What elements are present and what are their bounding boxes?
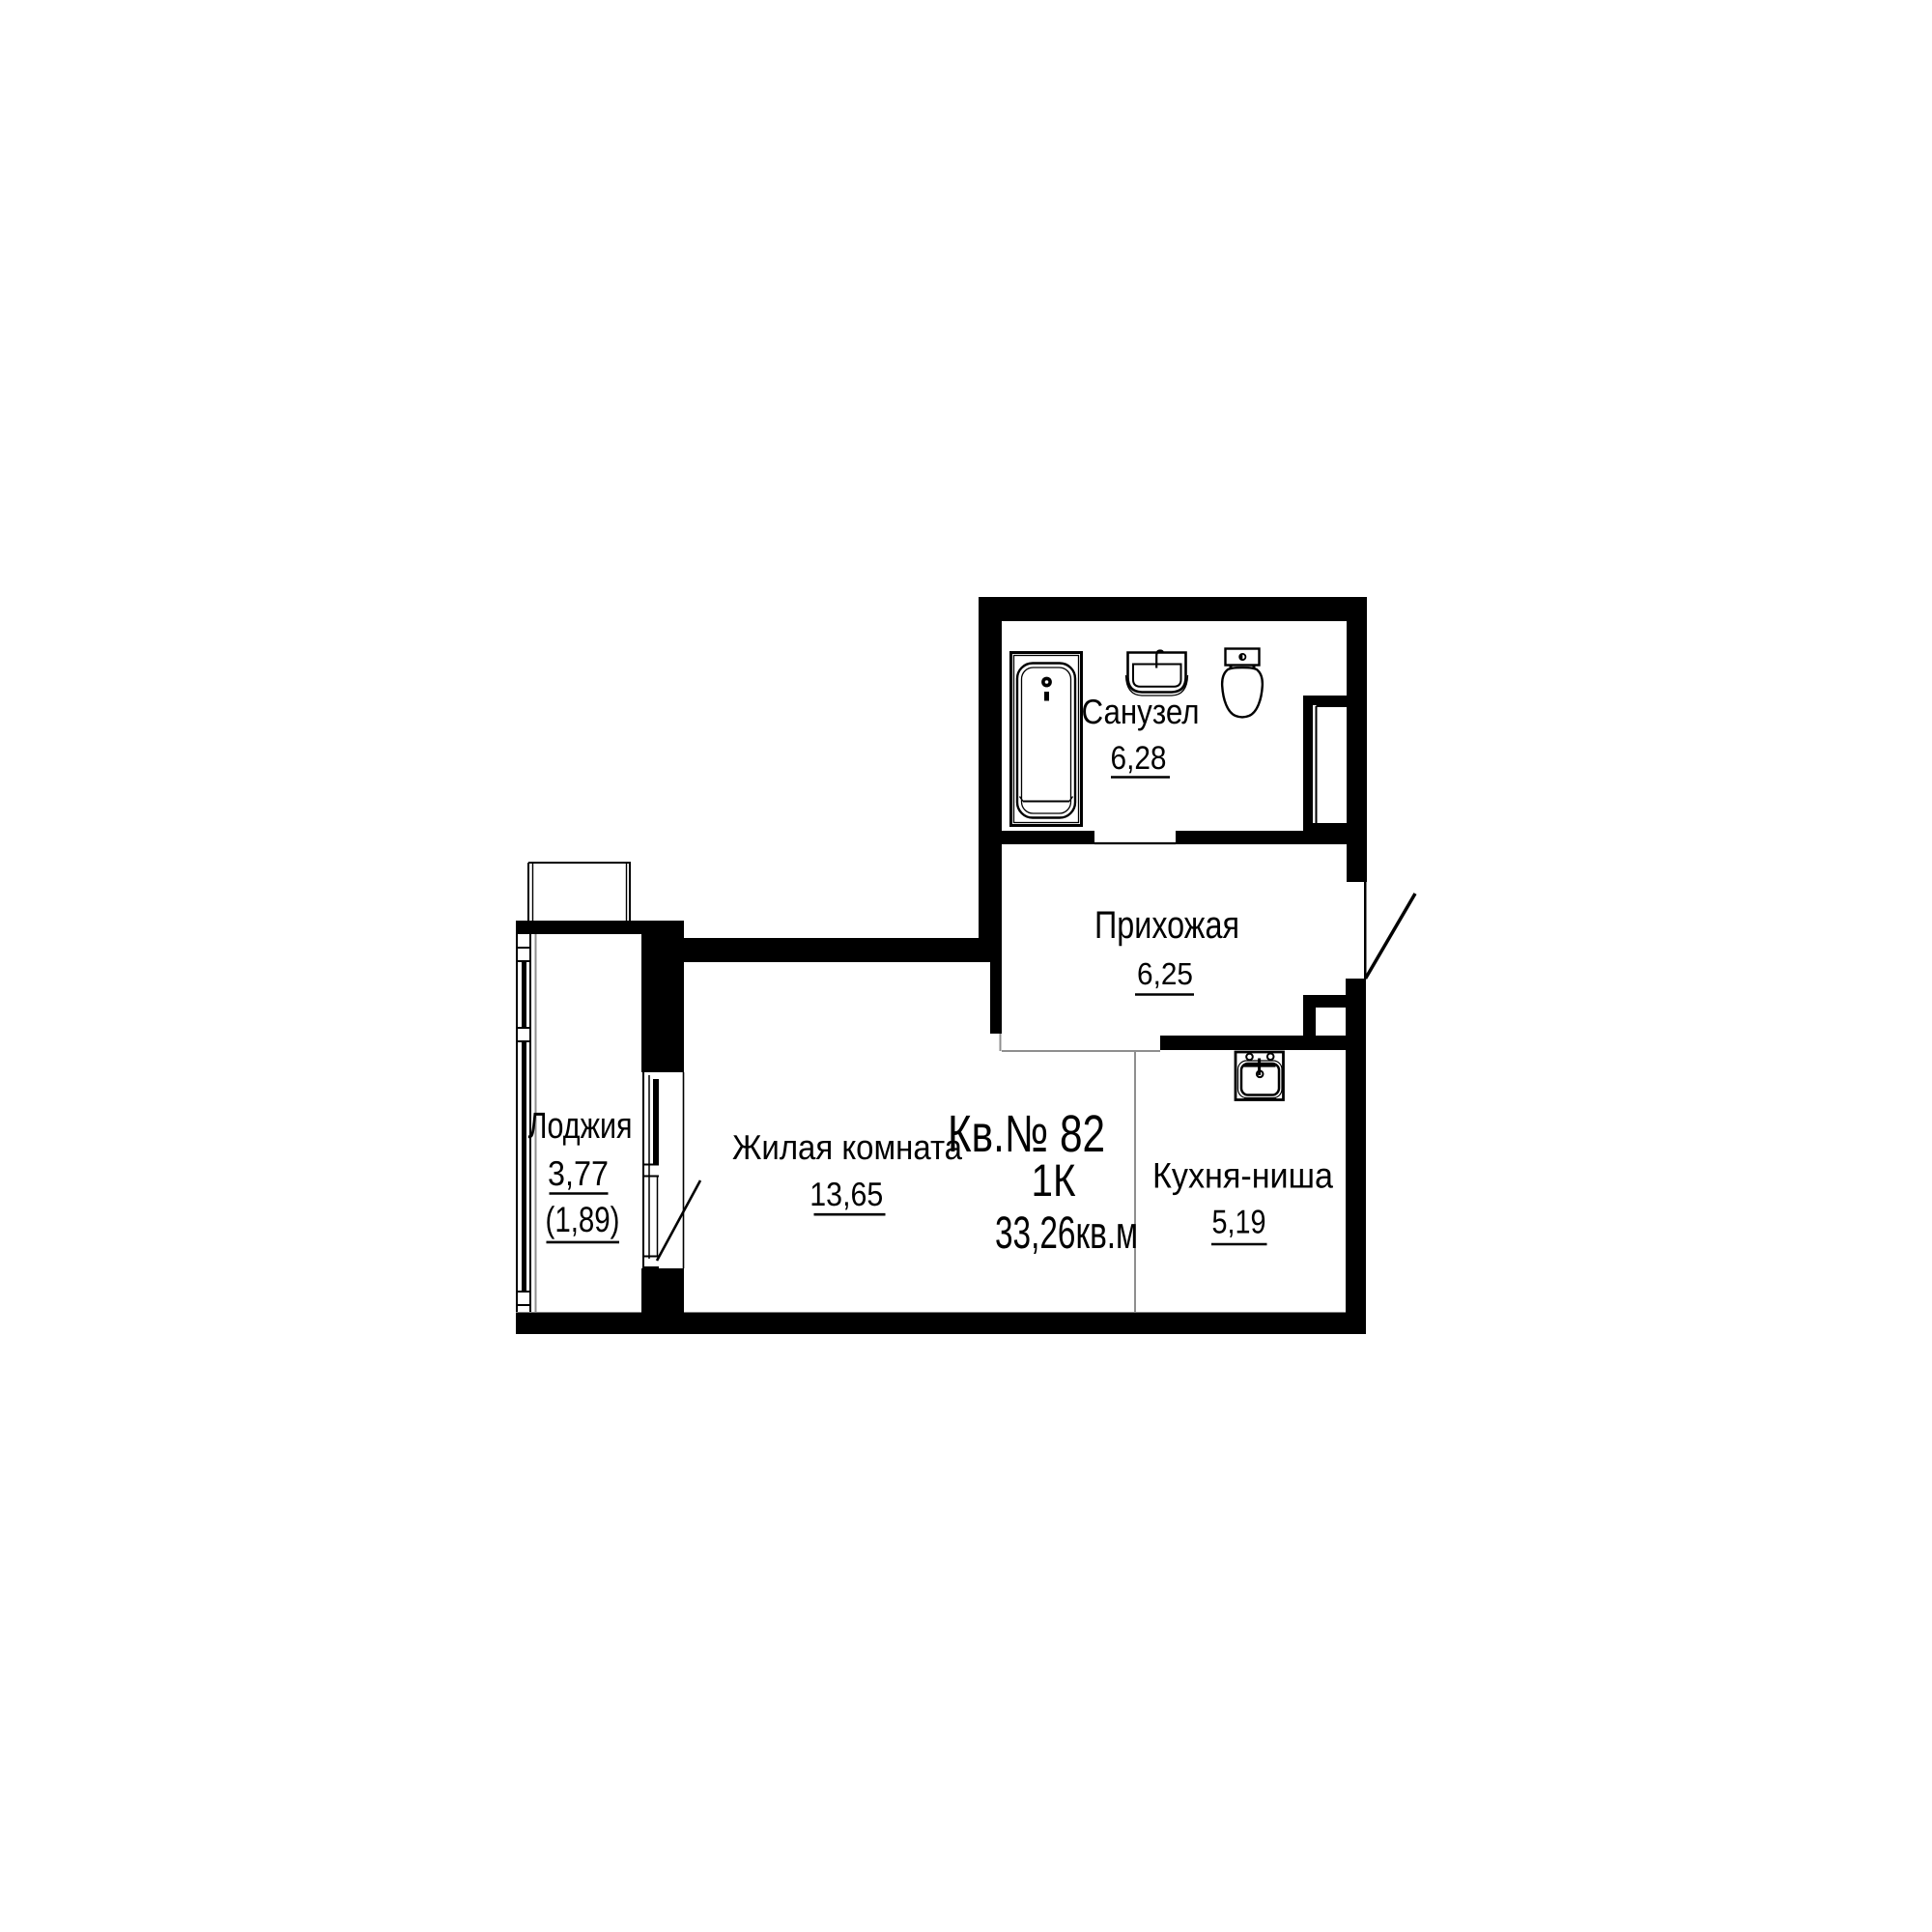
- svg-text:6,25: 6,25: [1137, 956, 1193, 991]
- svg-text:Кв.№ 82: Кв.№ 82: [948, 1105, 1105, 1163]
- svg-text:(1,89): (1,89): [545, 1200, 619, 1239]
- svg-text:Жилая комната: Жилая комната: [732, 1127, 963, 1167]
- svg-text:3,77: 3,77: [548, 1153, 609, 1193]
- svg-text:Лоджия: Лоджия: [527, 1106, 632, 1147]
- svg-text:Кухня-ниша: Кухня-ниша: [1152, 1155, 1333, 1195]
- svg-text:Санузел: Санузел: [1081, 692, 1199, 731]
- svg-text:5,19: 5,19: [1211, 1204, 1265, 1240]
- svg-text:33,26кв.м: 33,26кв.м: [995, 1207, 1138, 1258]
- svg-text:6,28: 6,28: [1110, 740, 1166, 777]
- svg-text:Прихожая: Прихожая: [1094, 904, 1239, 947]
- svg-text:1К: 1К: [1031, 1154, 1076, 1206]
- svg-text:13,65: 13,65: [810, 1177, 883, 1213]
